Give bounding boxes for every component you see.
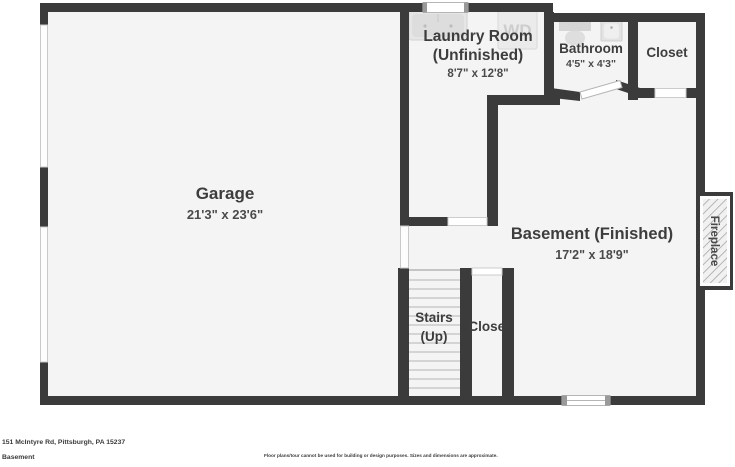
closet-bottom-door-opening — [472, 268, 502, 275]
garage-label: Garage — [196, 184, 255, 203]
window-bottom — [562, 396, 610, 406]
stairs-label-line1: Stairs — [415, 310, 453, 325]
fireplace: Fireplace — [696, 192, 733, 290]
wall-stairs-left — [398, 268, 409, 396]
garage-door-opening-upper — [41, 25, 48, 167]
footer-address: 151 McIntyre Rd, Pittsburgh, PA 15237 — [2, 439, 125, 446]
footer-floor-name: Basement — [2, 454, 35, 461]
closet-top-label: Closet — [646, 45, 688, 60]
wall-garage-laundry — [400, 8, 409, 226]
window-top — [423, 3, 468, 13]
garage-door-opening-lower — [41, 227, 48, 362]
wall-closet-bottom-right — [686, 88, 705, 98]
closet-top-door-opening — [655, 89, 686, 98]
bathroom-dims: 4'5" x 4'3" — [566, 58, 616, 70]
garage-hall-opening — [401, 226, 409, 268]
floor-right — [549, 17, 700, 401]
footer: 151 McIntyre Rd, Pittsburgh, PA 15237 Ba… — [2, 439, 498, 461]
wall-laundry-right-lower — [487, 95, 498, 226]
laundry-label-line2: (Unfinished) — [433, 47, 523, 64]
bathroom-sink-icon — [601, 21, 622, 41]
basement-label: Basement (Finished) — [511, 225, 673, 243]
wall-laundry-bottom-left — [400, 217, 448, 226]
footer-disclaimer: Floor plans/tour cannot be used for buil… — [264, 453, 498, 458]
wall-laundry-bathroom — [544, 12, 554, 95]
laundry-dims: 8'7" x 12'8" — [447, 68, 508, 80]
laundry-door-opening — [448, 218, 487, 226]
floor-plan-page: WD — [0, 0, 735, 462]
bathroom-label: Bathroom — [559, 41, 623, 56]
wall-left-middle — [40, 167, 48, 227]
wall-bathroom-closet — [628, 13, 638, 100]
wall-closet-bottom-left — [628, 88, 655, 98]
basement-dims: 17'2" x 18'9" — [555, 248, 628, 262]
garage-dims: 21'3" x 23'6" — [187, 207, 263, 222]
wall-top-left-section — [40, 3, 553, 12]
laundry-label-line1: Laundry Room — [423, 28, 532, 45]
stairs-label-line2: (Up) — [421, 329, 448, 344]
floor-left — [44, 7, 549, 401]
floor-plan: WD — [0, 0, 735, 462]
wall-left-top — [40, 3, 48, 25]
wall-left-bottom — [40, 362, 48, 405]
closet-bottom-label: Closet — [468, 319, 510, 334]
fireplace-label: Fireplace — [708, 216, 720, 267]
